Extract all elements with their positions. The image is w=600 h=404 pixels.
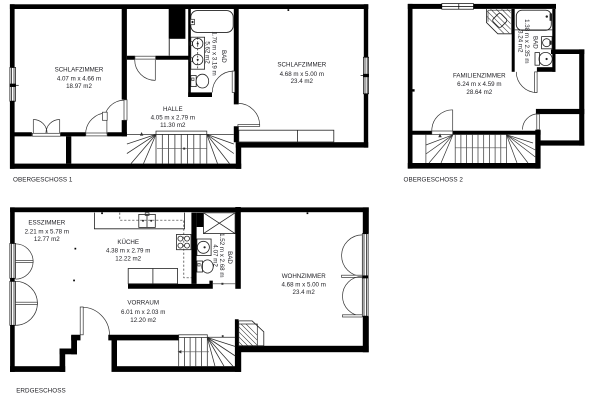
svg-text:BAD: BAD (226, 251, 233, 264)
svg-text:23.4 m2: 23.4 m2 (291, 78, 314, 85)
svg-text:SCHLAFZIMMER: SCHLAFZIMMER (55, 67, 104, 74)
svg-text:4.38 m x 2.79 m: 4.38 m x 2.79 m (106, 248, 150, 255)
svg-text:OBERGESCHOSS 1: OBERGESCHOSS 1 (13, 176, 73, 183)
svg-text:28.64 m2: 28.64 m2 (466, 89, 492, 96)
svg-text:ERDGESCHOSS: ERDGESCHOSS (16, 387, 66, 394)
svg-text:BAD: BAD (220, 50, 227, 63)
svg-text:12.22 m2: 12.22 m2 (115, 256, 141, 263)
svg-text:4.07 m x 4.66 m: 4.07 m x 4.66 m (57, 75, 101, 82)
svg-text:18.97 m2: 18.97 m2 (66, 83, 92, 90)
svg-text:VORRAUM: VORRAUM (127, 300, 159, 307)
svg-text:SCHLAFZIMMER: SCHLAFZIMMER (277, 62, 326, 69)
svg-text:OBERGESCHOSS 2: OBERGESCHOSS 2 (404, 176, 464, 183)
svg-text:KÜCHE: KÜCHE (117, 239, 139, 246)
svg-text:4.07 m2: 4.07 m2 (211, 244, 218, 267)
svg-text:2.21 m x 5.78 m: 2.21 m x 5.78 m (25, 228, 69, 235)
svg-text:6.01 m x 2.03 m: 6.01 m x 2.03 m (121, 309, 165, 316)
svg-text:WOHNZIMMER: WOHNZIMMER (282, 273, 327, 280)
svg-text:5.62 m2: 5.62 m2 (204, 41, 211, 64)
svg-text:12.77 m2: 12.77 m2 (34, 236, 60, 243)
svg-text:4.68 m x 5.00 m: 4.68 m x 5.00 m (282, 282, 326, 289)
svg-text:12.20 m2: 12.20 m2 (130, 317, 156, 324)
svg-text:ESSZIMMER: ESSZIMMER (28, 220, 65, 227)
svg-text:6.24 m x 4.59 m: 6.24 m x 4.59 m (457, 81, 501, 88)
svg-text:4.05 m x 2.79 m: 4.05 m x 2.79 m (151, 115, 195, 122)
svg-text:3.24 m2: 3.24 m2 (516, 30, 523, 53)
svg-text:HALLE: HALLE (163, 106, 183, 113)
svg-text:BAD: BAD (531, 36, 538, 49)
svg-text:FAMILIENZIMMER: FAMILIENZIMMER (453, 73, 506, 80)
svg-text:4.68 m x 5.00 m: 4.68 m x 5.00 m (280, 71, 324, 78)
svg-text:23.4 m2: 23.4 m2 (293, 289, 316, 296)
svg-text:11.30 m2: 11.30 m2 (160, 122, 186, 129)
